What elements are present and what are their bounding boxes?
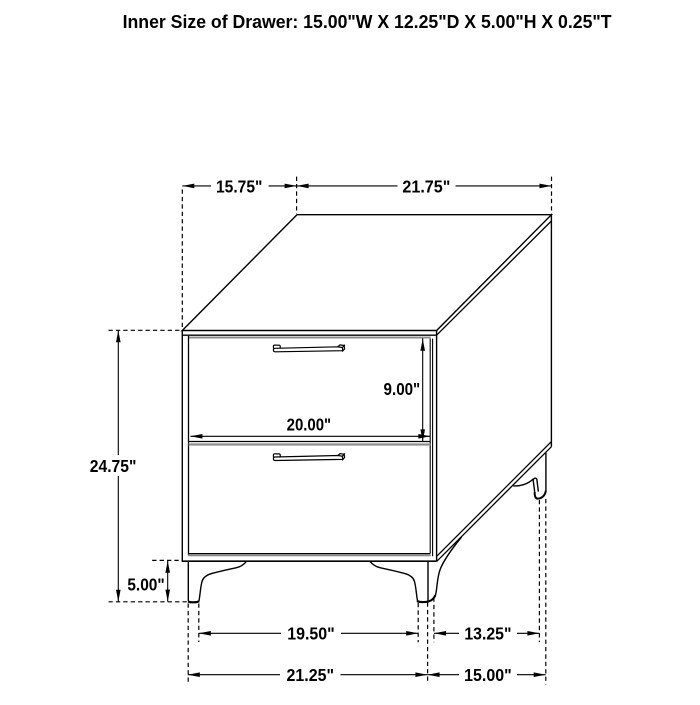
svg-text:21.25": 21.25" [287,665,335,685]
svg-text:15.75": 15.75" [216,176,263,196]
svg-text:Inner Size of Drawer: 15.00"W: Inner Size of Drawer: 15.00"W X 12.25"D … [123,11,613,32]
svg-text:13.25": 13.25" [464,623,511,643]
svg-text:21.75": 21.75" [402,176,450,196]
svg-text:9.00": 9.00" [384,379,421,399]
svg-text:19.50": 19.50" [287,623,335,643]
svg-text:20.00": 20.00" [287,415,332,435]
svg-text:15.00": 15.00" [464,665,512,685]
svg-text:24.75": 24.75" [90,456,137,476]
svg-text:5.00": 5.00" [127,574,164,594]
